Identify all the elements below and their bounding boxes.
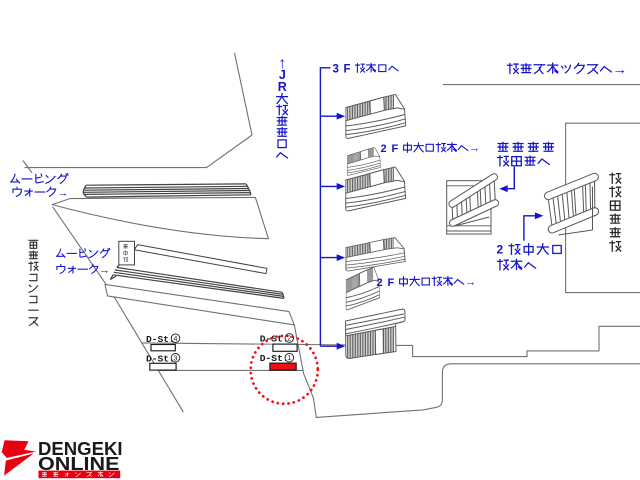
svg-text:F: F [388,277,395,289]
svg-text:2: 2 [377,277,383,289]
svg-text:2: 2 [497,243,504,257]
svg-text:F: F [392,143,399,155]
svg-text:→: → [613,62,628,78]
svg-text:R: R [278,80,287,94]
svg-text:→: → [57,187,69,199]
svg-text:→: → [469,143,481,155]
svg-text:D-St.: D-St. [146,334,175,345]
svg-text:2: 2 [381,143,387,155]
svg-text:→: → [99,264,110,276]
svg-text:3: 3 [333,63,339,75]
svg-text:3: 3 [174,355,178,362]
svg-text:1: 1 [287,355,291,362]
svg-text:→: → [465,276,477,288]
svg-text:F: F [344,63,351,75]
svg-text:D-St.: D-St. [260,334,289,345]
svg-text:4: 4 [174,336,178,343]
